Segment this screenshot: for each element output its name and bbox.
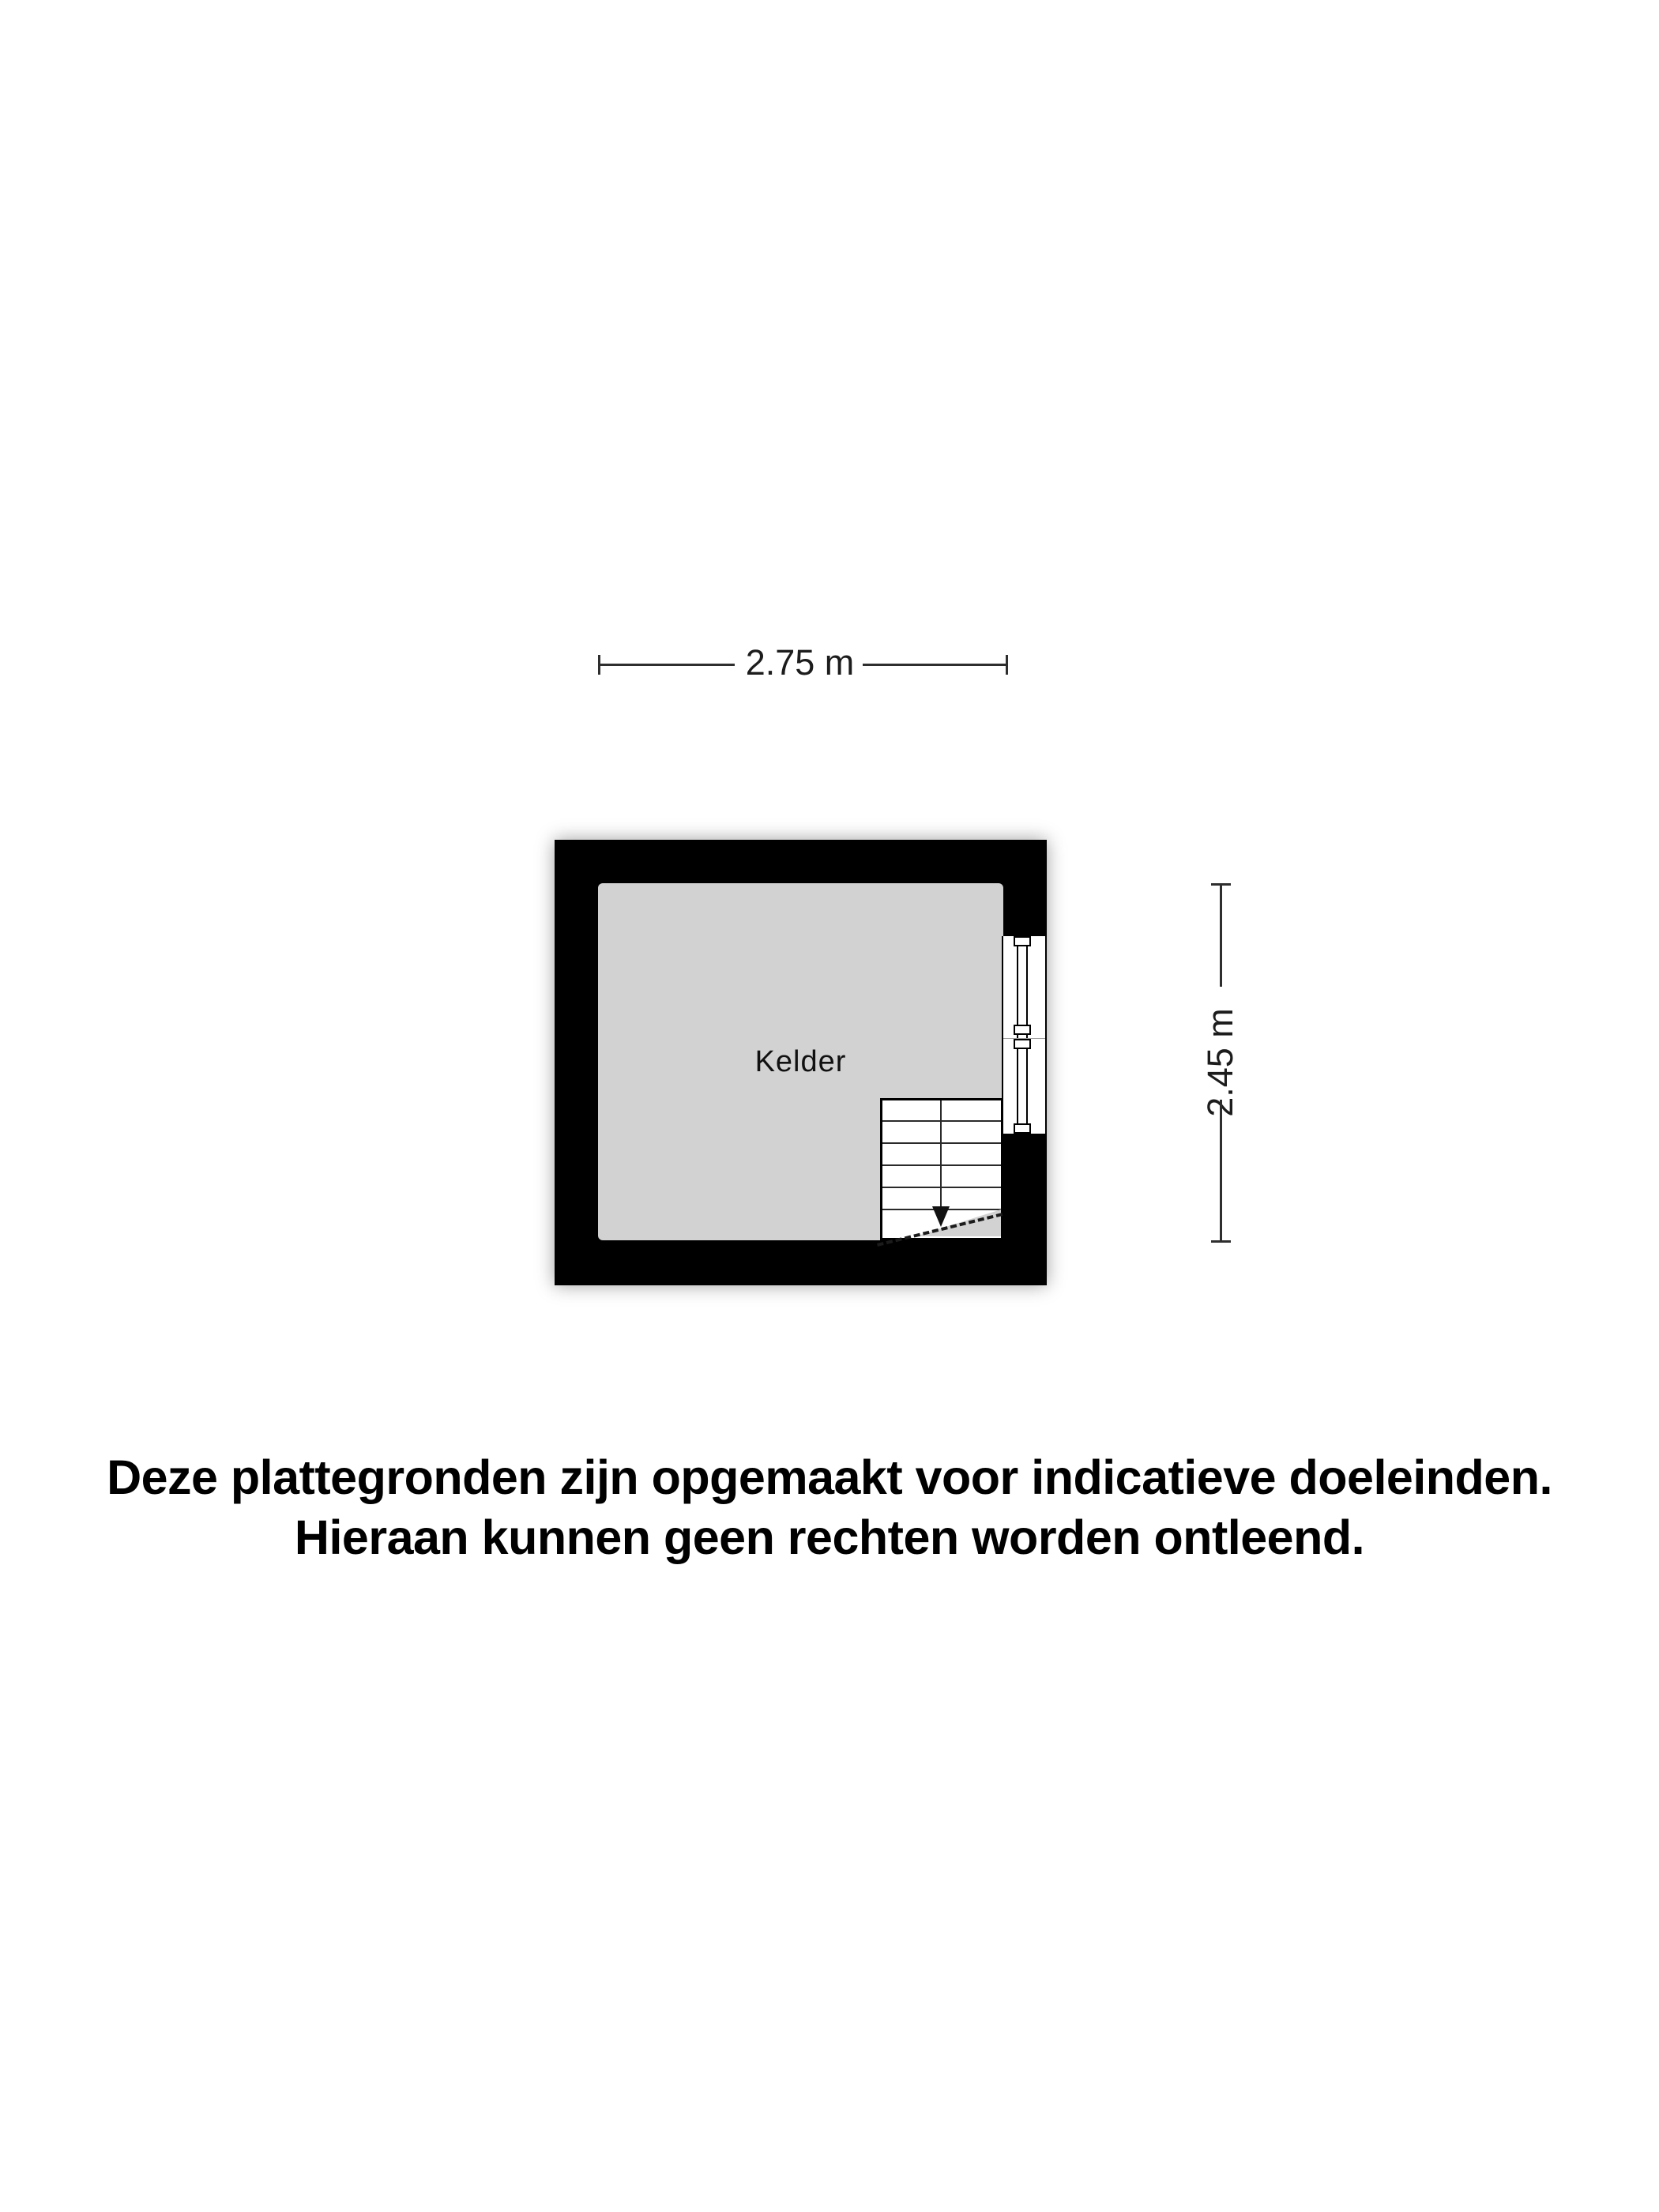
window <box>1002 936 1047 1134</box>
stair-tread-line <box>882 1164 1001 1166</box>
stair-tread-line <box>882 1187 1001 1188</box>
width-dimension-line-left <box>599 664 735 666</box>
disclaimer: Deze plattegronden zijn opgemaakt voor i… <box>0 1447 1659 1567</box>
height-dimension-line-top <box>1220 886 1222 987</box>
height-dimension-tick-bottom <box>1211 1240 1231 1243</box>
room-label: Kelder <box>755 1045 847 1079</box>
stair-tread-line <box>882 1142 1001 1144</box>
window-glass-line <box>1017 946 1028 1124</box>
window-frame-top <box>1014 936 1031 946</box>
disclaimer-line-1: Deze plattegronden zijn opgemaakt voor i… <box>0 1447 1659 1507</box>
stair-tread-line <box>882 1120 1001 1122</box>
window-frame-mid-lower <box>1014 1039 1031 1049</box>
floorplan-page: 2.75 m Kelder <box>0 0 1659 2212</box>
width-dimension-tick-left <box>598 655 600 675</box>
stair-walkline <box>940 1100 942 1209</box>
window-frame-mid-upper <box>1014 1025 1031 1035</box>
width-dimension-tick-right <box>1006 655 1008 675</box>
width-dimension-line-right <box>863 664 1007 666</box>
width-dimension-label: 2.75 m <box>727 642 873 683</box>
height-dimension-line-bottom <box>1220 1100 1222 1240</box>
disclaimer-line-2: Hieraan kunnen geen rechten worden ontle… <box>0 1507 1659 1567</box>
stair-down-arrow-icon <box>932 1206 950 1227</box>
floorplan-kelder: Kelder <box>555 840 1047 1285</box>
window-frame-bottom <box>1014 1123 1031 1134</box>
